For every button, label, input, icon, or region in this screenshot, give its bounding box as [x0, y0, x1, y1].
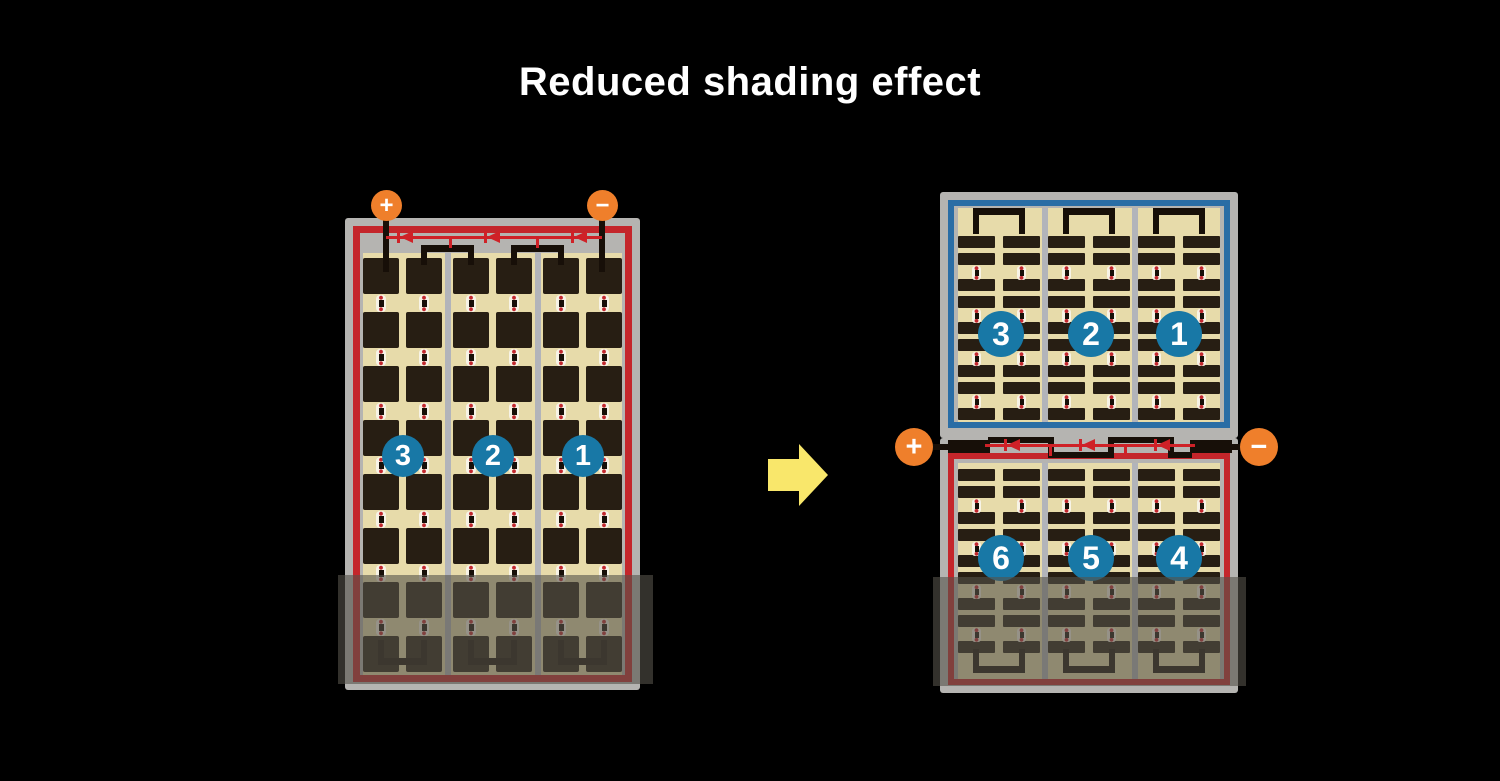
string-number-circle: 2 [1068, 311, 1114, 357]
terminal-negative: − [1240, 428, 1278, 466]
terminal-negative: − [587, 190, 618, 221]
string-number-circle: 6 [978, 535, 1024, 581]
diagram-stage: Reduced shading effect + − 3 2 1 [0, 0, 1500, 781]
string-number-circle: 5 [1068, 535, 1114, 581]
junction-wiring [1108, 437, 1114, 458]
bypass-diode [1004, 439, 1020, 451]
diode-tick [1049, 446, 1052, 456]
string-number-circle: 4 [1156, 535, 1202, 581]
shading-overlay [338, 575, 653, 684]
diagram-title: Reduced shading effect [519, 60, 981, 104]
diode-tick [1124, 446, 1127, 456]
string-number-circle: 3 [978, 311, 1024, 357]
string-number-circle: 1 [1156, 311, 1202, 357]
bypass-diode [1079, 439, 1095, 451]
shading-overlay [933, 577, 1246, 686]
junction-bar [948, 440, 990, 453]
bypass-diode [484, 231, 500, 243]
junction-bar [1190, 440, 1232, 453]
string-number-circle: 1 [562, 435, 604, 477]
terminal-positive: + [895, 428, 933, 466]
transform-arrow [768, 459, 799, 491]
terminal-positive: + [371, 190, 402, 221]
bypass-diode [571, 231, 587, 243]
top-busbar [511, 245, 564, 265]
bypass-diode [397, 231, 413, 243]
diode-tick [536, 238, 539, 248]
transform-arrow-head [799, 444, 828, 506]
string-number-circle: 3 [382, 435, 424, 477]
top-busbar [421, 245, 474, 265]
bypass-diode [1154, 439, 1170, 451]
junction-wiring [1048, 452, 1110, 458]
diode-tick [449, 238, 452, 248]
string-number-circle: 2 [472, 435, 514, 477]
